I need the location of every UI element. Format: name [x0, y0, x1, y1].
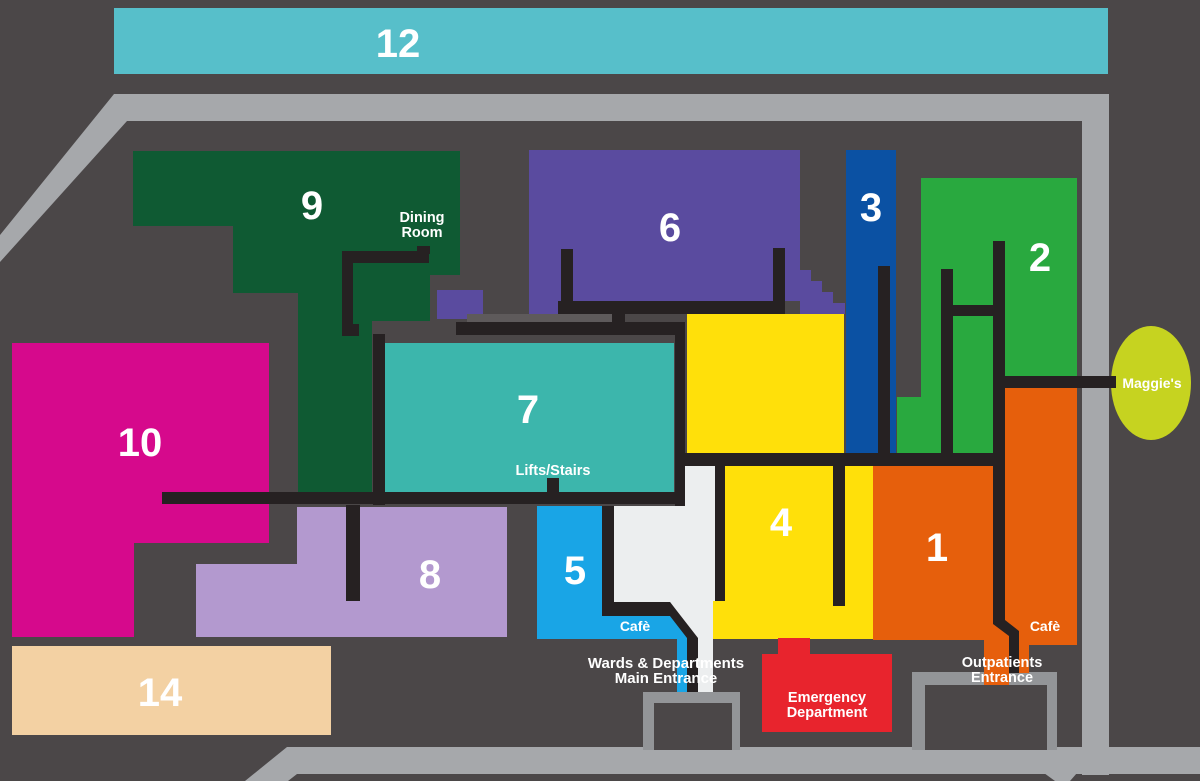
- svg-text:Cafè: Cafè: [620, 618, 651, 634]
- svg-text:Department: Department: [787, 705, 868, 721]
- svg-text:Dining: Dining: [399, 210, 444, 226]
- svg-text:10: 10: [118, 421, 163, 465]
- svg-text:8: 8: [419, 553, 441, 597]
- svg-text:Entrance: Entrance: [971, 670, 1033, 686]
- svg-text:9: 9: [301, 184, 323, 228]
- svg-text:Main Entrance: Main Entrance: [615, 670, 718, 687]
- svg-text:Emergency: Emergency: [788, 690, 866, 706]
- svg-text:Maggie's: Maggie's: [1122, 375, 1182, 391]
- svg-text:6: 6: [659, 206, 681, 250]
- svg-text:3: 3: [860, 186, 882, 230]
- svg-text:4: 4: [770, 501, 793, 545]
- svg-text:Room: Room: [401, 225, 442, 241]
- svg-text:14: 14: [138, 671, 183, 715]
- svg-text:12: 12: [376, 22, 421, 66]
- svg-text:Cafè: Cafè: [1030, 618, 1061, 634]
- svg-text:5: 5: [564, 549, 586, 593]
- svg-text:Lifts/Stairs: Lifts/Stairs: [516, 463, 591, 479]
- svg-text:7: 7: [517, 388, 539, 432]
- svg-text:Outpatients: Outpatients: [962, 655, 1043, 671]
- svg-text:1: 1: [926, 526, 948, 570]
- svg-text:2: 2: [1029, 236, 1051, 280]
